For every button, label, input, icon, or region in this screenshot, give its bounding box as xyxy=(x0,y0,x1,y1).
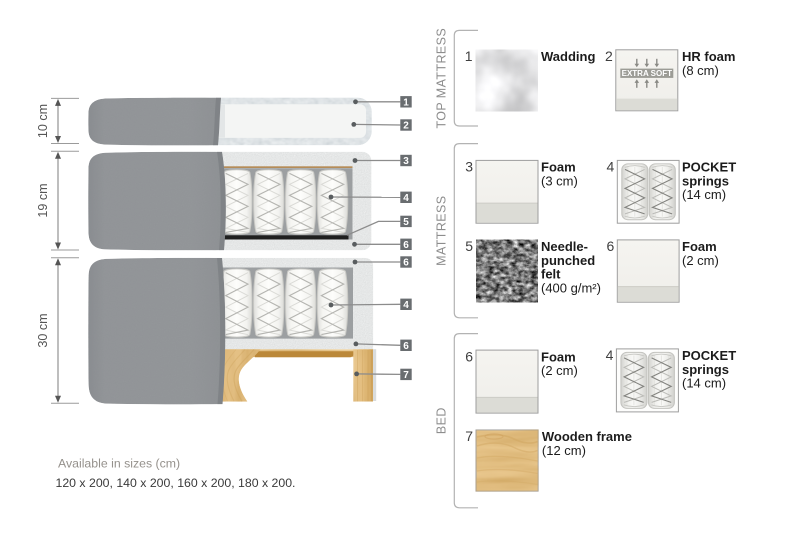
svg-text:6: 6 xyxy=(607,238,615,254)
svg-text:6: 6 xyxy=(403,258,409,269)
svg-text:19 cm: 19 cm xyxy=(36,183,50,217)
svg-text:Needle-: Needle- xyxy=(541,239,588,254)
svg-text:7: 7 xyxy=(465,428,473,444)
svg-text:4: 4 xyxy=(403,300,409,311)
svg-text:POCKET: POCKET xyxy=(682,348,736,363)
svg-text:Foam: Foam xyxy=(682,239,717,254)
svg-text:Available in sizes (cm): Available in sizes (cm) xyxy=(58,457,180,471)
svg-text:Wooden frame: Wooden frame xyxy=(542,429,632,444)
svg-text:punched: punched xyxy=(541,253,595,268)
svg-text:springs: springs xyxy=(682,173,729,188)
svg-text:(2 cm): (2 cm) xyxy=(682,253,719,268)
svg-text:(400 g/m²): (400 g/m²) xyxy=(541,281,601,296)
svg-text:springs: springs xyxy=(682,362,729,377)
svg-text:1: 1 xyxy=(403,97,409,108)
svg-text:1: 1 xyxy=(465,48,473,64)
svg-text:Wadding: Wadding xyxy=(541,49,595,64)
svg-text:3: 3 xyxy=(403,156,409,167)
svg-text:120 x 200, 140 x 200, 160 x 20: 120 x 200, 140 x 200, 160 x 200, 180 x 2… xyxy=(56,476,296,490)
svg-text:2: 2 xyxy=(605,48,613,64)
svg-text:(14 cm): (14 cm) xyxy=(682,187,726,202)
svg-text:POCKET: POCKET xyxy=(682,160,736,175)
svg-text:(8 cm): (8 cm) xyxy=(682,63,719,78)
svg-text:2: 2 xyxy=(403,121,409,132)
svg-text:4: 4 xyxy=(607,159,615,175)
svg-text:6: 6 xyxy=(403,341,409,352)
svg-text:3: 3 xyxy=(465,159,473,175)
svg-text:(2 cm): (2 cm) xyxy=(541,363,578,378)
svg-text:BED: BED xyxy=(435,407,449,434)
svg-text:Foam: Foam xyxy=(541,349,576,364)
svg-text:(14 cm): (14 cm) xyxy=(682,376,726,391)
svg-text:HR foam: HR foam xyxy=(682,49,735,64)
svg-text:4: 4 xyxy=(403,193,409,204)
svg-text:6: 6 xyxy=(403,240,409,251)
svg-text:EXTRA SOFT: EXTRA SOFT xyxy=(622,69,672,78)
svg-text:10 cm: 10 cm xyxy=(36,104,50,138)
svg-text:(3 cm): (3 cm) xyxy=(541,173,578,188)
svg-text:(12 cm): (12 cm) xyxy=(542,443,586,458)
svg-text:6: 6 xyxy=(465,348,473,364)
svg-text:7: 7 xyxy=(403,370,409,381)
svg-text:4: 4 xyxy=(606,347,614,363)
svg-text:5: 5 xyxy=(403,217,409,228)
svg-text:5: 5 xyxy=(465,238,473,254)
svg-text:30 cm: 30 cm xyxy=(36,313,50,347)
svg-text:TOP MATTRESS: TOP MATTRESS xyxy=(435,28,449,129)
svg-text:Foam: Foam xyxy=(541,160,576,175)
svg-text:MATTRESS: MATTRESS xyxy=(435,196,449,266)
svg-text:felt: felt xyxy=(541,267,561,282)
